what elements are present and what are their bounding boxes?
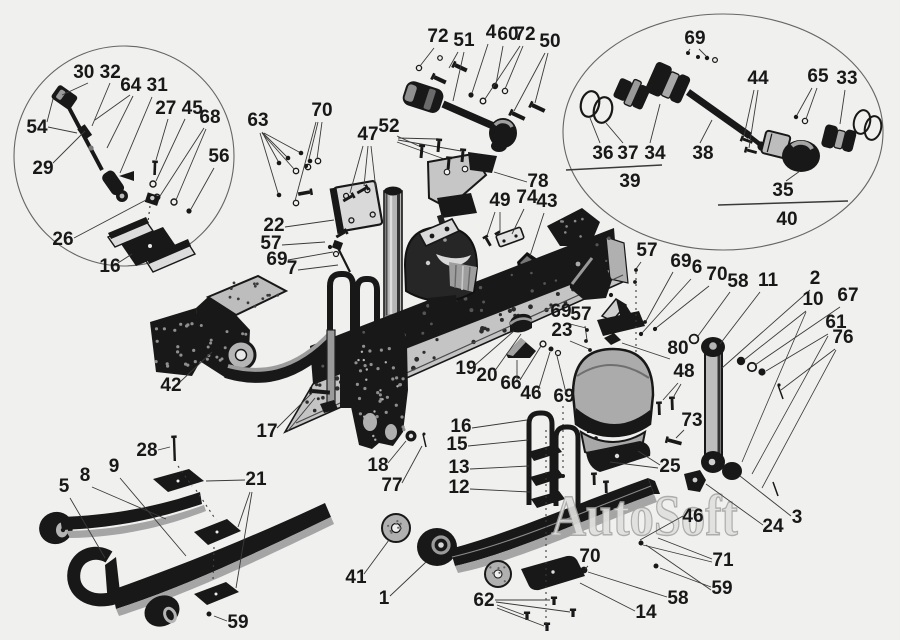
svg-text:40: 40 [776,209,797,230]
svg-text:13: 13 [448,457,469,478]
svg-text:49: 49 [489,190,510,211]
svg-text:74: 74 [516,187,538,208]
svg-text:19: 19 [455,358,476,379]
svg-text:59: 59 [711,578,732,599]
svg-text:56: 56 [208,146,229,167]
svg-text:72: 72 [427,26,448,47]
svg-text:76: 76 [832,327,853,348]
svg-text:5: 5 [59,476,70,497]
svg-text:69: 69 [670,251,691,272]
svg-text:50: 50 [539,31,560,52]
svg-text:44: 44 [747,68,769,89]
svg-text:72: 72 [514,24,535,45]
svg-text:42: 42 [160,375,181,396]
svg-text:18: 18 [367,455,388,476]
svg-text:2: 2 [810,268,821,289]
svg-text:69: 69 [550,301,571,322]
svg-text:26: 26 [52,229,73,250]
svg-text:25: 25 [659,456,681,477]
svg-text:39: 39 [619,171,640,192]
svg-text:69: 69 [266,249,287,270]
svg-text:6: 6 [692,257,703,278]
svg-text:71: 71 [712,550,734,571]
svg-text:67: 67 [837,285,858,306]
svg-text:52: 52 [378,116,399,137]
svg-text:8: 8 [80,465,91,486]
svg-text:58: 58 [727,271,748,292]
svg-text:4: 4 [486,22,497,43]
svg-text:14: 14 [635,602,657,623]
svg-text:51: 51 [453,30,475,51]
svg-text:12: 12 [448,477,469,498]
svg-text:80: 80 [667,338,688,359]
svg-text:3: 3 [792,507,803,528]
svg-text:58: 58 [667,588,688,609]
svg-text:69: 69 [684,28,705,49]
svg-text:11: 11 [758,270,779,291]
svg-text:41: 41 [345,567,367,588]
svg-text:38: 38 [692,143,713,164]
svg-text:57: 57 [636,240,657,261]
svg-text:59: 59 [227,612,248,633]
svg-text:10: 10 [802,289,823,310]
svg-text:68: 68 [199,107,220,128]
svg-text:57: 57 [570,304,591,325]
svg-text:30 32: 30 32 [73,62,121,83]
svg-text:17: 17 [256,421,277,442]
svg-text:73: 73 [681,410,702,431]
svg-text:9: 9 [109,456,120,477]
svg-text:23: 23 [551,320,572,341]
svg-text:46: 46 [682,506,703,527]
svg-text:29: 29 [32,158,53,179]
svg-text:48: 48 [673,361,694,382]
svg-text:24: 24 [762,516,784,537]
svg-text:77: 77 [381,475,402,496]
svg-text:7: 7 [287,258,298,279]
svg-text:70: 70 [706,264,727,285]
svg-text:70: 70 [579,546,600,567]
svg-text:34: 34 [644,143,666,164]
svg-text:28: 28 [136,440,157,461]
svg-text:33: 33 [836,68,857,89]
svg-text:70: 70 [311,100,332,121]
svg-text:AutoSoft: AutoSoft [551,483,738,548]
svg-text:27 45: 27 45 [155,98,203,119]
svg-text:37: 37 [617,143,638,164]
svg-text:65: 65 [807,66,829,87]
svg-text:62: 62 [473,590,494,611]
svg-text:46: 46 [520,383,541,404]
svg-text:21: 21 [245,469,267,490]
svg-text:66: 66 [500,373,521,394]
svg-text:64 31: 64 31 [120,75,168,96]
svg-text:15: 15 [446,434,468,455]
svg-text:20: 20 [476,365,497,386]
svg-text:63: 63 [247,110,268,131]
svg-text:47: 47 [357,124,378,145]
svg-text:36: 36 [592,143,613,164]
svg-text:16: 16 [99,256,120,277]
svg-text:1: 1 [379,588,390,609]
svg-text:54: 54 [26,117,48,138]
svg-text:43: 43 [536,191,557,212]
svg-text:35: 35 [772,180,794,201]
svg-text:69: 69 [553,386,574,407]
